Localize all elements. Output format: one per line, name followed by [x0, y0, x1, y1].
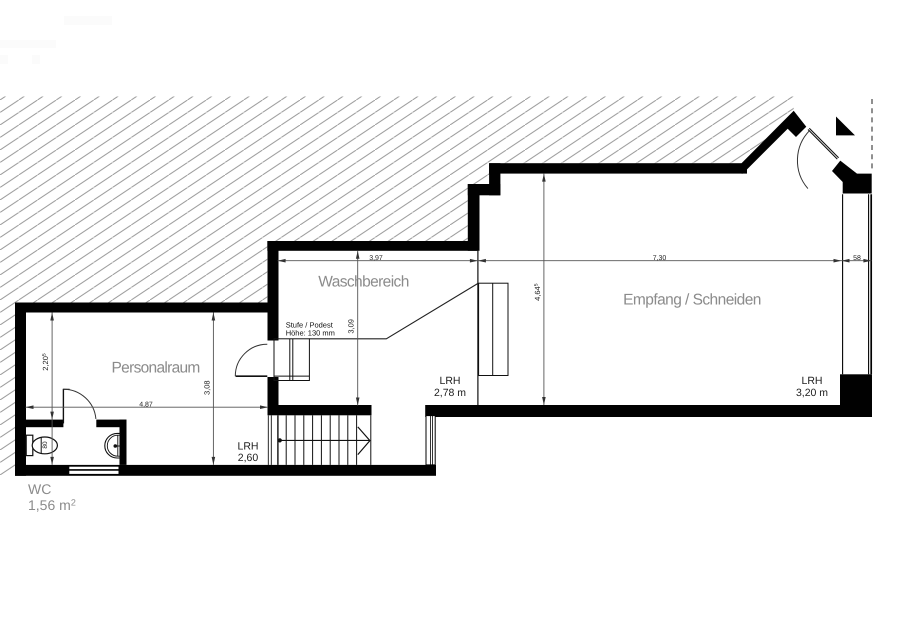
svg-text:80: 80 [42, 441, 49, 449]
svg-text:4,87: 4,87 [139, 402, 153, 409]
svg-text:LRH: LRH [801, 375, 822, 387]
svg-text:4,645: 4,645 [533, 283, 542, 301]
svg-text:LRH: LRH [237, 440, 258, 452]
svg-text:WC: WC [28, 481, 51, 497]
svg-text:3,97: 3,97 [369, 255, 383, 262]
svg-text:Personalraum: Personalraum [112, 360, 200, 377]
svg-text:Waschbereich: Waschbereich [318, 273, 408, 290]
svg-text:LRH: LRH [439, 375, 460, 387]
svg-text:Empfang / Schneiden: Empfang / Schneiden [623, 292, 761, 309]
svg-text:2,205: 2,205 [41, 353, 50, 371]
svg-text:58: 58 [853, 255, 861, 262]
svg-text:3,20 m: 3,20 m [796, 387, 828, 399]
svg-text:1,56 m2: 1,56 m2 [28, 497, 76, 513]
svg-text:Höhe: 130 mm: Höhe: 130 mm [286, 328, 335, 337]
svg-text:3,09: 3,09 [347, 319, 356, 334]
svg-text:7,30: 7,30 [653, 255, 667, 262]
svg-text:2,60: 2,60 [238, 452, 259, 464]
svg-text:3,08: 3,08 [202, 380, 211, 395]
svg-text:2,78 m: 2,78 m [434, 387, 466, 399]
